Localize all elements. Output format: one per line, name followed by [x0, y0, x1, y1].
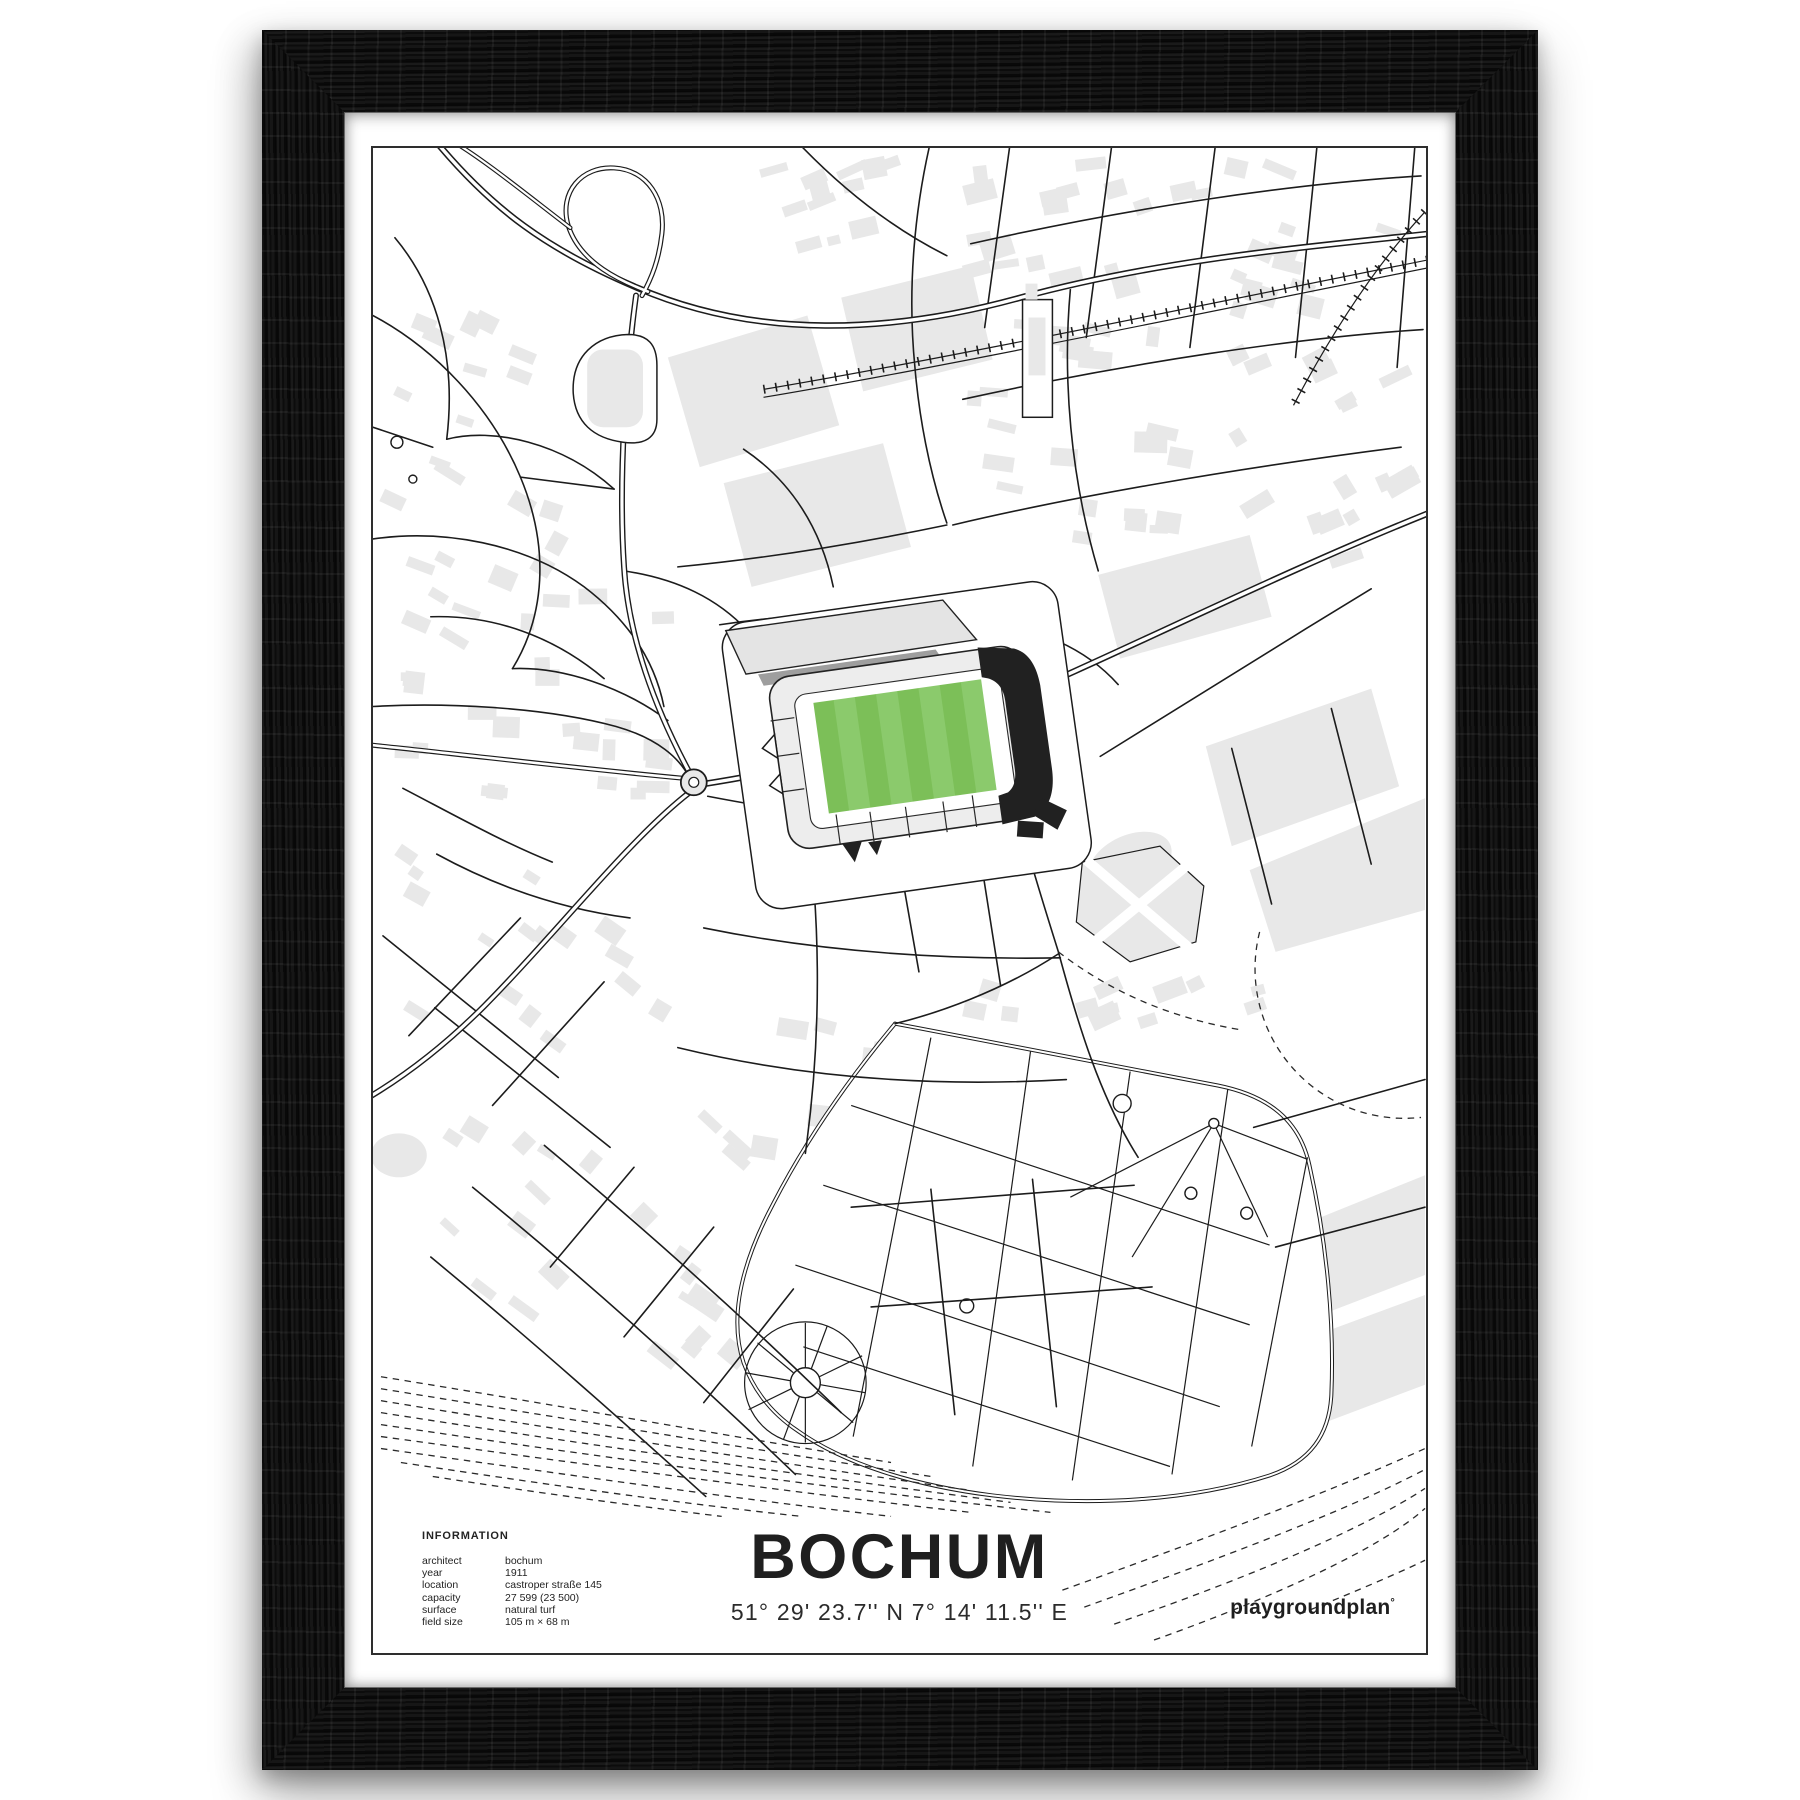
- frame-edge-left: [262, 30, 344, 1770]
- frame-edge-top: [262, 30, 1538, 112]
- stadium-pitch: [812, 678, 997, 814]
- product-photo: INFORMATION architectbochum year1911 loc…: [0, 0, 1800, 1800]
- picture-frame: INFORMATION architectbochum year1911 loc…: [262, 30, 1538, 1770]
- city-map-graphic: [373, 148, 1426, 1653]
- frame-edge-bottom: [262, 1688, 1538, 1770]
- map-panel: INFORMATION architectbochum year1911 loc…: [371, 146, 1428, 1655]
- page-title: BOCHUM: [373, 1524, 1426, 1590]
- brand-text: playgroundplan: [1230, 1596, 1390, 1619]
- road-node: [409, 475, 417, 483]
- stadium: [719, 578, 1095, 912]
- road-node: [391, 436, 403, 448]
- poster-mat: INFORMATION architectbochum year1911 loc…: [344, 112, 1456, 1688]
- roundabout: [681, 769, 707, 795]
- brand-degree-mark: °: [1390, 1597, 1395, 1609]
- paths-junction: [1076, 846, 1204, 962]
- frame-edge-right: [1456, 30, 1538, 1770]
- tower-building: [1023, 284, 1053, 418]
- pond: [373, 1133, 427, 1177]
- brand-logo: playgroundplan°: [1230, 1596, 1395, 1620]
